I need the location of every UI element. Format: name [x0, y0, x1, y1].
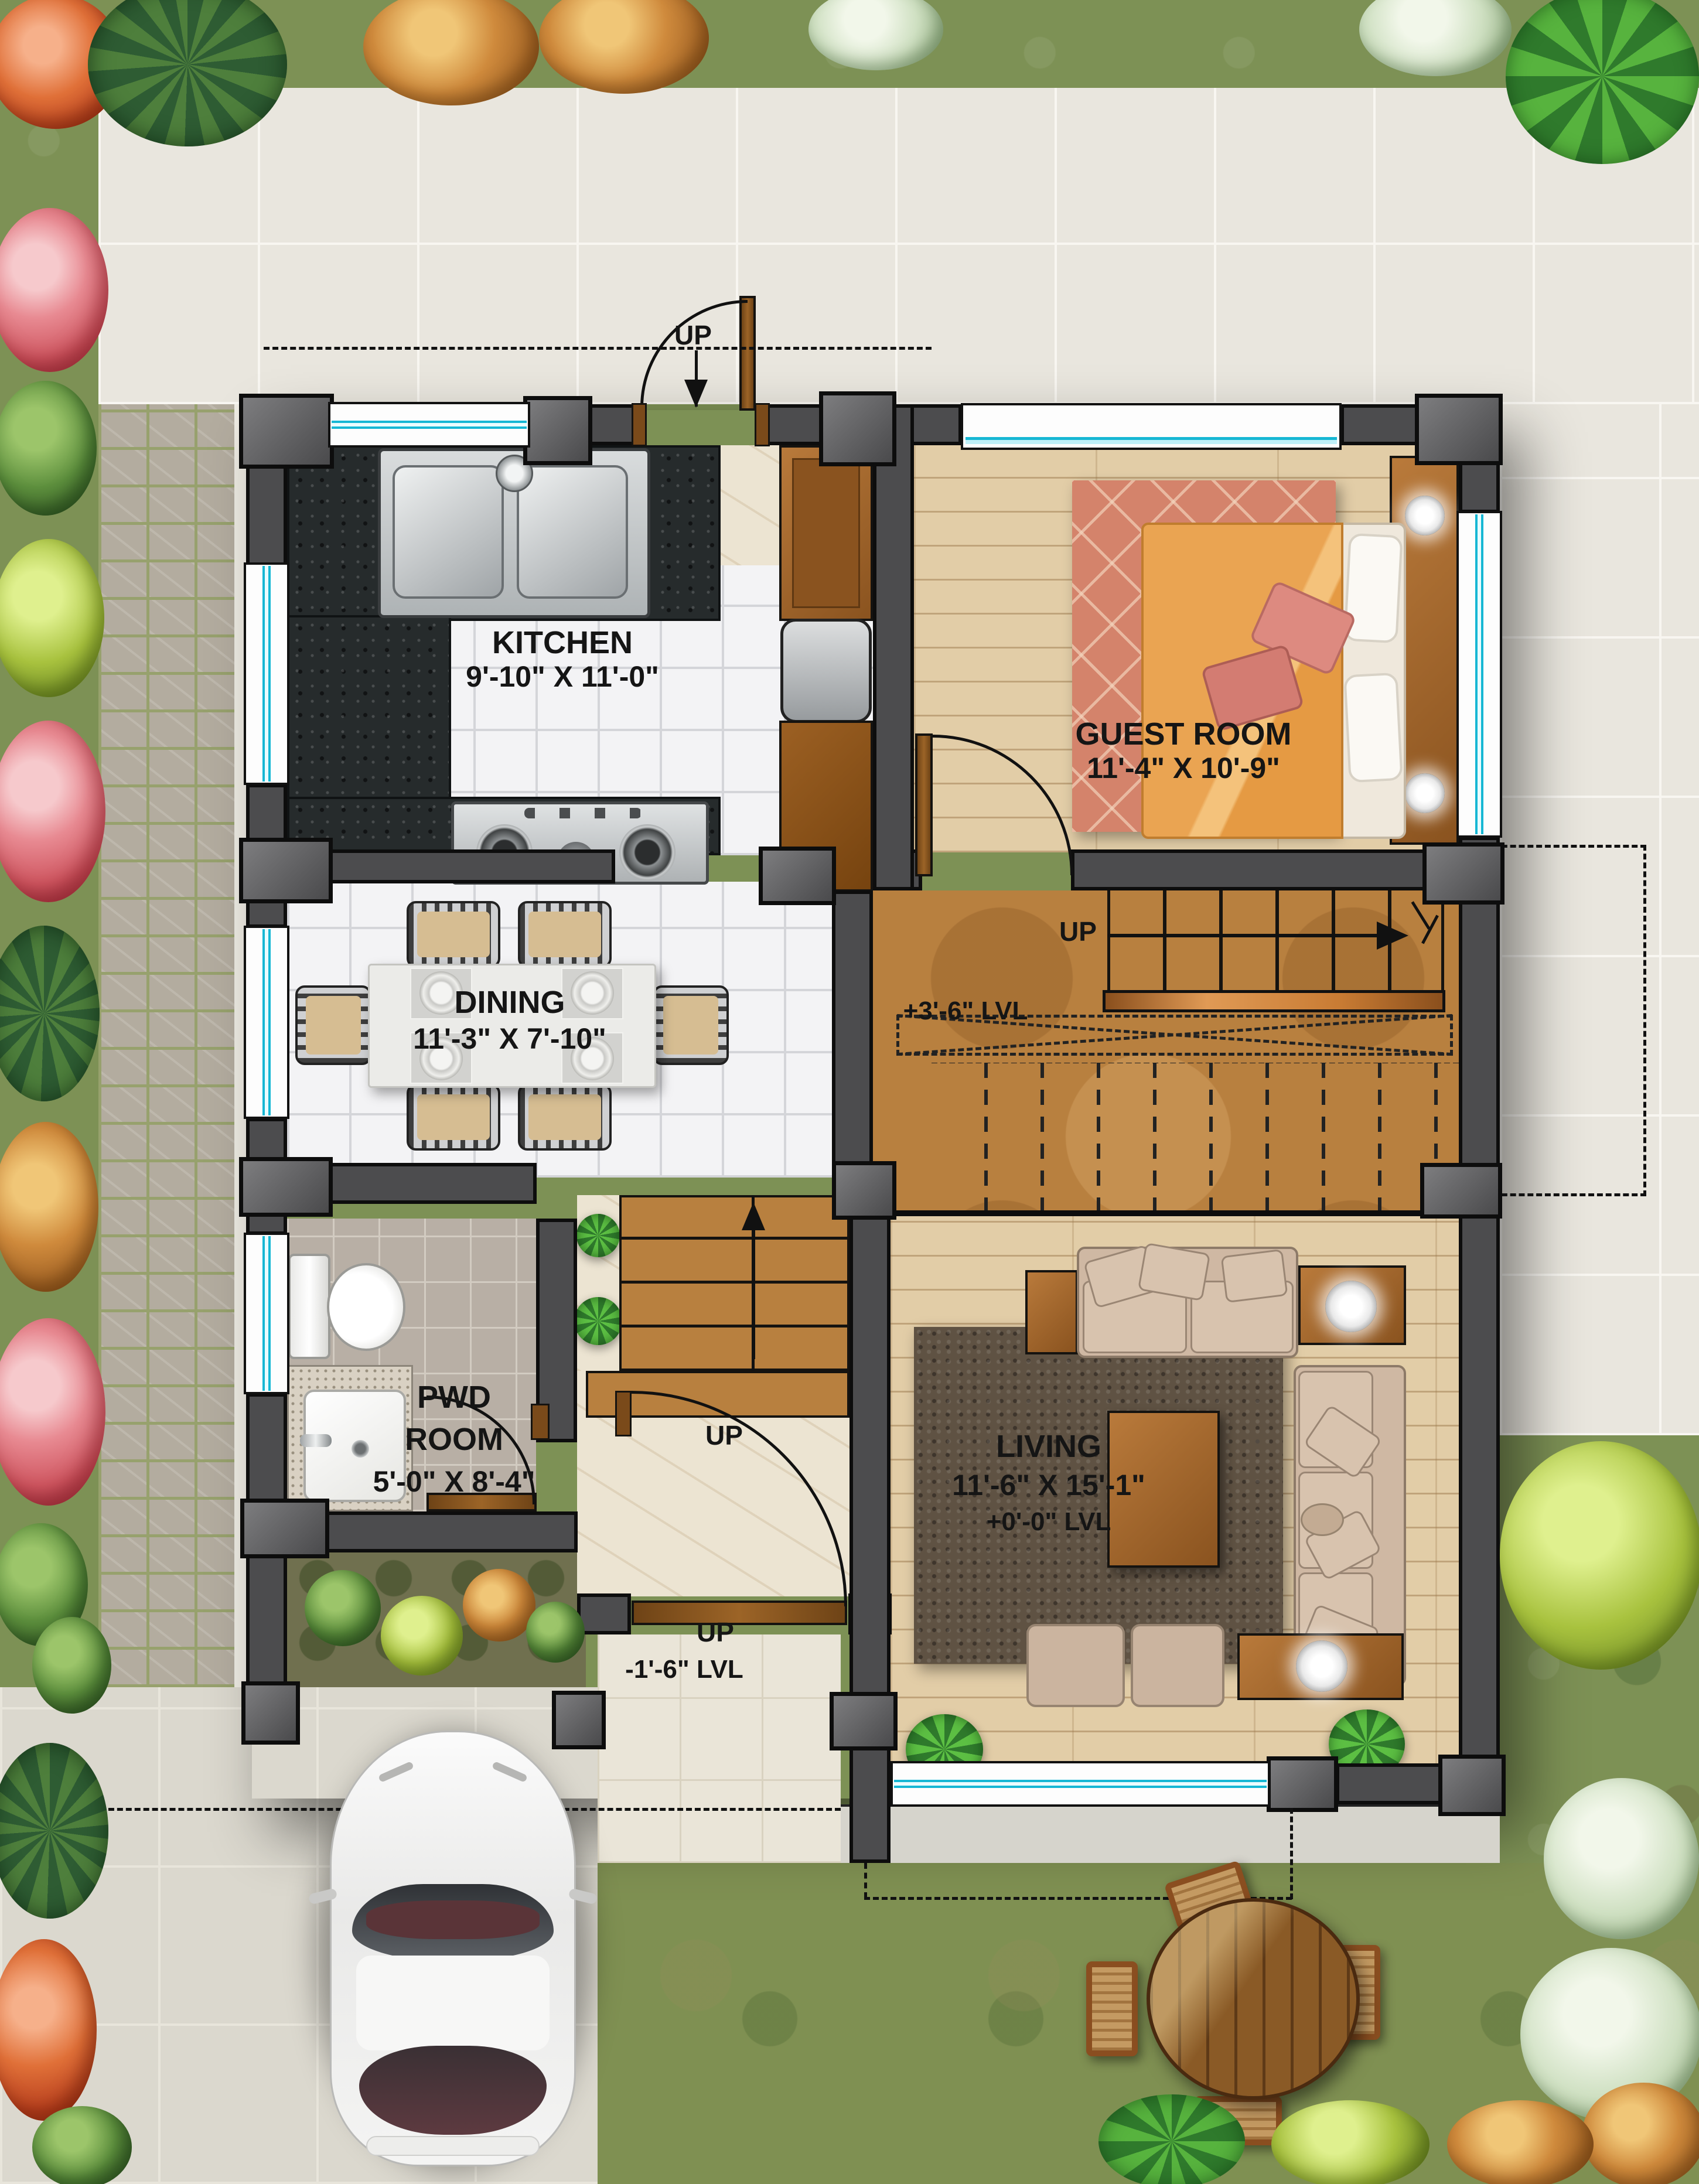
- stove-knobs: [524, 808, 642, 818]
- pillar: [241, 1681, 300, 1745]
- dining-chair: [407, 901, 500, 968]
- pillar: [1420, 1163, 1502, 1219]
- car-roof: [356, 1956, 550, 2050]
- sink-bowl-left: [393, 465, 504, 599]
- sofa-pouf-round: [1301, 1503, 1344, 1536]
- ottoman: [1026, 1624, 1125, 1707]
- stair-lower-flight-dashed: [932, 1060, 1459, 1213]
- stone-path: [98, 404, 234, 1687]
- pillar: [1415, 394, 1503, 465]
- living-level: +0'-0" LVL: [914, 1508, 1183, 1536]
- guest-window-right: [1456, 511, 1502, 838]
- setback-line-top: [264, 347, 932, 350]
- kitchen-cabinet-upper: [779, 445, 873, 621]
- landing-edge: [891, 1210, 1459, 1216]
- pillar: [239, 394, 334, 469]
- wall: [850, 1216, 891, 1863]
- stair-future-extension: [1493, 845, 1646, 1196]
- foyer-up-label: UP: [695, 1421, 753, 1451]
- rear-lamp: [1296, 1640, 1347, 1692]
- guest-window-top: [961, 403, 1342, 450]
- porch-level-label: -1'-6" LVL: [596, 1656, 772, 1684]
- side-table-left: [1025, 1270, 1078, 1354]
- pwd-window-left: [244, 1233, 289, 1394]
- foyer-arrow-line: [752, 1229, 755, 1359]
- bed-bush: [526, 1602, 585, 1663]
- sofa-pillow: [1221, 1249, 1288, 1303]
- pillar: [819, 391, 896, 466]
- pillar: [1422, 842, 1504, 905]
- dining-chair: [518, 901, 612, 968]
- porch-projection-line: [864, 1863, 867, 1898]
- pillar: [240, 1499, 329, 1558]
- burner-right: [619, 824, 675, 881]
- cabinet-inset: [792, 458, 860, 608]
- dining-chair: [518, 1084, 612, 1151]
- door-jamb: [632, 403, 647, 446]
- pillar: [1267, 1756, 1338, 1812]
- porch-up-label: UP: [683, 1618, 748, 1647]
- planter-plant-2: [574, 1297, 622, 1345]
- kitchen-window-top: [328, 402, 530, 448]
- foyer-arrow-head: [742, 1202, 765, 1230]
- pillar: [759, 847, 836, 905]
- stair-level-label: +3'-6" LVL: [878, 997, 1053, 1025]
- foyer-steps: [619, 1195, 850, 1371]
- living-dims: 11'-6" X 15'-1": [867, 1469, 1230, 1501]
- pwd-label-2: ROOM: [360, 1422, 548, 1456]
- guest-dims: 11'-4" X 10'-9": [996, 752, 1371, 784]
- pillar: [523, 396, 592, 465]
- bedside-lamp-bottom: [1405, 773, 1445, 813]
- bed-bush: [305, 1570, 381, 1646]
- wall: [1459, 837, 1500, 1804]
- porch-projection-line: [1290, 1808, 1293, 1899]
- car-rear-glass: [359, 2046, 547, 2135]
- corner-lamp: [1325, 1281, 1377, 1332]
- pillar: [239, 1157, 333, 1217]
- kitchen-label: KITCHEN: [375, 626, 750, 660]
- guest-label: GUEST ROOM: [996, 717, 1371, 751]
- bed-bush: [381, 1596, 463, 1675]
- sink-bowl-right: [517, 465, 628, 599]
- tree: [1544, 1778, 1699, 1939]
- garden-table: [1147, 1898, 1360, 2100]
- tree: [1271, 2100, 1430, 2184]
- living-window-bottom: [891, 1761, 1270, 1807]
- stair-railing: [1103, 990, 1445, 1012]
- pillar: [830, 1692, 898, 1750]
- dining-window-left: [244, 926, 289, 1119]
- pillar: [239, 838, 333, 903]
- floor-plan: KITCHEN 9'-10" X 11'-0" GUEST ROOM 11'-4…: [0, 0, 1699, 2184]
- planter-plant-1: [576, 1214, 620, 1257]
- living-label: LIVING: [902, 1429, 1195, 1463]
- car-trunk: [366, 2136, 540, 2156]
- bedside-lamp-top: [1405, 496, 1445, 535]
- garden-chair: [1086, 1961, 1138, 2056]
- dining-label: DINING: [369, 985, 650, 1019]
- stair-arrow-line: [1107, 934, 1380, 937]
- refrigerator: [780, 619, 872, 723]
- rear-plinth: [841, 1804, 1500, 1863]
- door-jamb: [755, 403, 770, 446]
- car-dashboard: [366, 1900, 540, 1939]
- tree: [1447, 2100, 1594, 2184]
- stair-up-label: UP: [1049, 917, 1107, 947]
- stair-arrow-head: [1377, 922, 1408, 950]
- entrance-arrow-head: [684, 380, 708, 408]
- car: [324, 1727, 582, 2173]
- bed-pillow-1: [1343, 533, 1403, 644]
- kitchen-window-left: [244, 562, 289, 785]
- toilet-bowl: [327, 1263, 405, 1351]
- paved-patio: [98, 88, 1699, 404]
- dining-dims: 11'-3" X 7'-10": [346, 1023, 674, 1055]
- kitchen-sink: [378, 448, 650, 618]
- tree: [32, 1617, 111, 1714]
- tree: [1500, 1441, 1699, 1670]
- pillar: [832, 1161, 896, 1220]
- basin-faucet: [300, 1434, 332, 1447]
- pillar: [1438, 1755, 1506, 1816]
- toilet-tank: [288, 1254, 330, 1359]
- wall: [873, 404, 914, 890]
- tree: [1582, 2083, 1699, 2184]
- pwd-label-1: PWD: [378, 1380, 530, 1414]
- entrance-up-label: UP: [661, 321, 725, 350]
- pwd-dims: 5'-0" X 8'-4": [316, 1466, 592, 1497]
- tree: [32, 2106, 132, 2184]
- bed-bush: [463, 1569, 535, 1642]
- kitchen-dims: 9'-10" X 11'-0": [375, 661, 750, 692]
- door-jamb: [615, 1391, 632, 1436]
- guest-door-panel: [915, 733, 933, 876]
- dining-chair: [407, 1084, 500, 1151]
- ottoman: [1131, 1624, 1224, 1707]
- wall: [577, 1593, 631, 1634]
- monstera-plant: [1098, 2094, 1245, 2184]
